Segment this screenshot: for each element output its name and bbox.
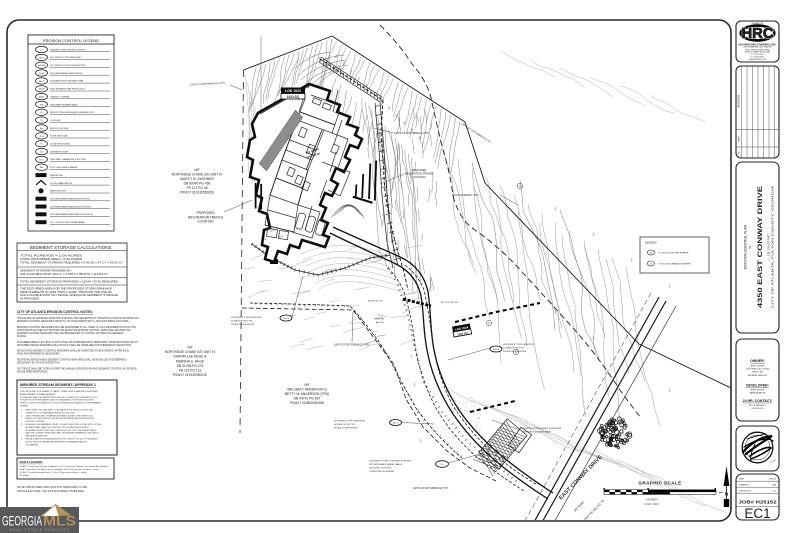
svg-text:PROPOSED: PROPOSED — [412, 168, 427, 172]
svg-text:FLOW LINE: FLOW LINE — [50, 120, 61, 122]
svg-text:CITY OF ATLANTA EROSION CONTRO: CITY OF ATLANTA EROSION CONTROL NOTES: — [17, 310, 93, 314]
svg-text:SILT FENCE TYPE SENSITIVE: SILT FENCE TYPE SENSITIVE — [503, 344, 534, 346]
svg-text:BUFFER ZONE: BUFFER ZONE — [50, 175, 63, 177]
svg-text:1 inch = 40 ft.: 1 inch = 40 ft. — [644, 503, 659, 506]
svg-text:N/F: N/F — [304, 383, 309, 387]
svg-text:BUILD FLOOR LINE: BUILD FLOOR LINE — [50, 128, 69, 130]
svg-text:FB 119 PG 113: FB 119 PG 113 — [179, 369, 201, 373]
svg-text:NORTHSIDE CHASE S/D UNIT IV: NORTHSIDE CHASE S/D UNIT IV — [165, 350, 216, 354]
svg-text:SILT FENCE TYPE SENSITIVE: SILT FENCE TYPE SENSITIVE — [231, 317, 262, 319]
svg-text:CHECKED BY: CHECKED BY — [739, 491, 752, 493]
svg-text:FR 127 PG 46: FR 127 PG 46 — [186, 186, 207, 190]
svg-text:INLET SEDIMENT TRAP PROTECTION: INLET SEDIMENT TRAP PROTECTION — [50, 88, 85, 91]
svg-text:GRAPHIC SCALE: GRAPHIC SCALE — [638, 481, 681, 486]
svg-text:IMPAIRED STREAM SEGMENT/ APPEN: IMPAIRED STREAM SEGMENT/ APPENDIX 1 — [20, 383, 96, 387]
svg-text:LONGITUDE: 84.40820W: LONGITUDE: 84.40820W — [369, 471, 395, 473]
svg-text:EROSION CONTROL LEGEND: EROSION CONTROL LEGEND — [43, 38, 99, 43]
svg-text:TURBIDITY CURTAIN: TURBIDITY CURTAIN — [50, 95, 70, 98]
svg-text:W/ MULCH B/W ROWS: W/ MULCH B/W ROWS — [334, 428, 358, 430]
svg-text:220 HOWELL MILL ROAD: 220 HOWELL MILL ROAD — [746, 368, 770, 371]
svg-text:DATE: DATE — [739, 478, 745, 481]
svg-text:75' NO DISTURBANCE BUFFER: 75' NO DISTURBANCE BUFFER — [658, 263, 691, 266]
svg-text:SAME AS ABOVE: SAME AS ABOVE — [749, 392, 766, 395]
svg-text:JOB# H25152: JOB# H25152 — [739, 500, 777, 506]
svg-text:NECESSARY BY ON-SITE INSPECTIO: NECESSARY BY ON-SITE INSPECTION. — [17, 362, 60, 365]
svg-text:NORTHSIDE CHASE S/D UNIT IV: NORTHSIDE CHASE S/D UNIT IV — [172, 173, 223, 177]
svg-text:SEDIMENT STORAGE CALCULATIONS: SEDIMENT STORAGE CALCULATIONS — [30, 245, 112, 250]
svg-text:CuB2: Cartecay-Toccoa complex,: CuB2: Cartecay-Toccoa complex, 0 to 2 pe… — [20, 465, 110, 468]
svg-text:HRC: HRC — [742, 26, 775, 42]
svg-text:18"x4'x20': 18"x4'x20' — [375, 319, 385, 321]
svg-text:BETTY M. ANDERSON (TRS): BETTY M. ANDERSON (TRS) — [285, 392, 329, 396]
svg-text:Sd1-S: Sd1-S — [38, 57, 45, 59]
svg-text:DISTURBED AREA STABILIZATION W: DISTURBED AREA STABILIZATION W/ SOD — [50, 197, 91, 200]
svg-text:IS PROVIDED.: IS PROVIDED. — [20, 297, 40, 300]
svg-text:DB 31786 PG 274: DB 31786 PG 274 — [177, 364, 204, 368]
svg-text:TEMPORARY SEDIMENT BASIN: TEMPORARY SEDIMENT BASIN — [50, 103, 78, 106]
svg-text:ACTUAL START DATE OF CONSTRUCT: ACTUAL START DATE OF CONSTRUCTION VISIBL… — [26, 426, 90, 429]
svg-text:Sd1-S: Sd1-S — [392, 423, 399, 425]
svg-text:LATITUDE: 33.87376N: LATITUDE: 33.87376N — [369, 467, 392, 470]
svg-text:DISTRICT OFFICE.: DISTRICT OFFICE. — [26, 421, 46, 423]
svg-text:GEORGIA: GEORGIA — [2, 513, 42, 529]
svg-text:SOURCE.: SOURCE. — [17, 335, 27, 338]
svg-text:RAIN, AND REPAIRED AS NECESSAR: RAIN, AND REPAIRED AS NECESSARY. — [17, 353, 60, 356]
svg-text:HAS BEEN SUBMITTED.: HAS BEEN SUBMITTED. — [26, 435, 49, 438]
svg-text:DATE: DATE — [738, 136, 741, 142]
svg-text:LIMITS OF DISTURBANCE (TYP.): LIMITS OF DISTURBANCE (TYP.) — [334, 344, 370, 347]
svg-text:Ds3/4: Ds3/4 — [39, 73, 45, 75]
svg-text:GwF: Gwinett-Pacolet-Cecil com: GwF: Gwinett-Pacolet-Cecil complex, 20 t… — [20, 468, 100, 471]
svg-text:STONE CHECK DAM: STONE CHECK DAM — [50, 135, 67, 138]
svg-text:INSTALL BMPS FOR A MINIMUM 50: INSTALL BMPS FOR A MINIMUM 50 FOOT WIDTH… — [26, 438, 98, 441]
svg-text:N/F: N/F — [187, 346, 192, 350]
svg-text:DISTURBED AREAS REMAINING IDLE: DISTURBED AREAS REMAINING IDLE 30 DAYS S… — [17, 344, 132, 347]
svg-text:DB 44741 PG 897: DB 44741 PG 897 — [294, 397, 321, 401]
svg-text:PaD2: Pacolet sandy loam, 10 t: PaD2: Pacolet sandy loam, 10 to 25 perce… — [20, 471, 88, 474]
svg-text:W/ MULCH B/W ROWS: W/ MULCH B/W ROWS — [231, 324, 255, 326]
svg-text:DISCHARGED.: DISCHARGED. — [26, 443, 40, 446]
svg-text:DEVELOPER:: DEVELOPER: — [746, 384, 769, 388]
svg-text:SOILS LEGEND:: SOILS LEGEND: — [20, 460, 43, 464]
svg-text:HOOSER RAY COMPANY, INC.: HOOSER RAY COMPANY, INC. — [739, 43, 777, 46]
svg-text:SEDIMENT CONTROL MEASURES SHAL: SEDIMENT CONTROL MEASURES SHALL BE IMPLE… — [17, 332, 124, 335]
svg-text:678-230-1174: 678-230-1174 — [751, 408, 764, 410]
svg-text:DOUBLE ROW (TYP): DOUBLE ROW (TYP) — [231, 321, 253, 323]
svg-text:CRUSHED STONE CONSTRUCTION EXI: CRUSHED STONE CONSTRUCTION EXIT — [369, 461, 412, 463]
svg-text:SILT FENCE TYPE SENSITIVE: SILT FENCE TYPE SENSITIVE — [334, 421, 365, 423]
svg-text:THE PROPOSED SITE DRAINS TO NA: THE PROPOSED SITE DRAINS TO NANCY CREEK … — [20, 390, 98, 393]
svg-text:04/11/25: 04/11/25 — [769, 479, 776, 481]
svg-text:AND FUEL STORAGE AREA: AND FUEL STORAGE AREA — [522, 431, 551, 434]
svg-text:870: 870 — [411, 355, 413, 358]
svg-text:F: 770-859-0358: F: 770-859-0358 — [751, 56, 764, 58]
svg-text:W/ TEMPORARY WHEEL WASH: W/ TEMPORARY WHEEL WASH — [369, 463, 402, 466]
svg-text:25 LF: 25 LF — [378, 315, 384, 317]
svg-text:866: 866 — [417, 411, 419, 414]
svg-text:TO ENSURE THAT THE PERMITTEE D: TO ENSURE THAT THE PERMITTEE DOES NOT VI… — [20, 396, 97, 399]
svg-text:CITY OF ATLANTA, FULTON COUNTY: CITY OF ATLANTA, FULTON COUNTY, GEORGIA — [771, 185, 774, 308]
svg-text:NOTE: PROPOSED INFILTRATION TR: NOTE: PROPOSED INFILTRATION TRENCHES TO … — [17, 485, 87, 489]
svg-text:LIMITS OF DISTURBANCE (TYP.): LIMITS OF DISTURBANCE (TYP.) — [413, 487, 449, 490]
svg-text:Sd3/T: Sd3/T — [39, 97, 45, 99]
svg-text:868: 868 — [414, 383, 416, 386]
svg-text:SUITE 2-087: SUITE 2-087 — [752, 372, 764, 374]
svg-text:Sd1-S: Sd1-S — [493, 349, 500, 351]
svg-text:L.L. 138, 17th DISTRICT: L.L. 138, 17th DISTRICT — [768, 233, 771, 261]
svg-text:EC1: EC1 — [744, 506, 770, 521]
svg-text:SILT FENCE (TYPE NON-SENSITIVE: SILT FENCE (TYPE NON-SENSITIVE) — [50, 65, 86, 67]
svg-text:AND THE CONTACT PERSON(S) AND: AND THE CONTACT PERSON(S) AND TELEPHONE … — [26, 432, 100, 435]
svg-text:SEDIMENT CONTROL MEASURES PRIO: SEDIMENT CONTROL MEASURES PRIOR TO, OR C… — [17, 320, 129, 323]
svg-text:TEMPORARY CHANNELIZED STRUCTUR: TEMPORARY CHANNELIZED STRUCTURE — [50, 158, 86, 161]
svg-text:PID#17 013800050185: PID#17 013800050185 — [290, 401, 324, 405]
svg-text:ACRES OR LESS WITHOUT PRIOR WR: ACRES OR LESS WITHOUT PRIOR WRITTEN APPR… — [26, 417, 95, 420]
svg-text:ATEFI DESIGN: ATEFI DESIGN — [751, 365, 765, 368]
svg-text:SAMPLING POINT: SAMPLING POINT — [50, 190, 67, 193]
svg-text:CRUSHED STONE CONSTRUCTION EXI: CRUSHED STONE CONSTRUCTION EXIT — [50, 49, 86, 51]
svg-text:Bm: Bm — [40, 128, 43, 130]
svg-text:AS AN IMPAIRED STREAM SEGMENT.: AS AN IMPAIRED STREAM SEGMENT. — [20, 393, 56, 396]
svg-text:REAL ESTATE SERVICES: REAL ESTATE SERVICES — [10, 528, 70, 532]
svg-text:Sd2-P: Sd2-P — [38, 81, 45, 83]
svg-text:TURBIDITY OF STORMWATER RECEIV: TURBIDITY OF STORMWATER RECEIVED ON-SITE… — [26, 411, 76, 414]
svg-text:864: 864 — [420, 439, 422, 442]
svg-text:PID#17 019130050012: PID#17 019130050012 — [173, 373, 207, 377]
svg-text:MLS: MLS — [43, 513, 76, 529]
svg-text:DARVIN LEE HEGE &: DARVIN LEE HEGE & — [174, 355, 208, 359]
svg-text:INV OUT: 872.00: INV OUT: 872.00 — [441, 302, 458, 304]
svg-text:RETROFITTING PERFORATED RISER: RETROFITTING PERFORATED RISER AND PIPE — [50, 111, 94, 114]
svg-text:INFILTRATION TRENCH: INFILTRATION TRENCH — [405, 172, 434, 176]
svg-text:WILLIAM F. ANDERSON &: WILLIAM F. ANDERSON & — [287, 388, 327, 392]
svg-text:SILT FENCE (TYPE SENSITIVE): SILT FENCE (TYPE SENSITIVE) — [50, 57, 81, 59]
svg-text:◆ 4.20%: ◆ 4.20% — [376, 321, 384, 324]
svg-text:W: Water: W: Water — [20, 474, 30, 477]
svg-text:EROSION CONTROL PLAN: EROSION CONTROL PLAN — [744, 224, 748, 269]
svg-text:Sd1-NS: Sd1-NS — [38, 65, 46, 67]
svg-text:LOCATION: LOCATION — [412, 175, 425, 179]
svg-text:OWNER:: OWNER: — [750, 359, 765, 363]
svg-text:EXCAVATED INLET SEDIMENT TRAP: EXCAVATED INLET SEDIMENT TRAP — [50, 80, 84, 83]
svg-text:Sd2-F: Sd2-F — [39, 89, 46, 91]
svg-text:872: 872 — [408, 327, 410, 330]
svg-text:INV IN: 872.00: INV IN: 872.00 — [368, 301, 383, 303]
svg-text:INSTALLED ONCE THE SITE HAS BE: INSTALLED ONCE THE SITE HAS BEEN STABILI… — [17, 489, 85, 493]
svg-text:DISSIPATOR STONE: DISSIPATOR STONE — [50, 150, 69, 153]
svg-text:LIMIT THE AMOUNT OF AREA DISTU: LIMIT THE AMOUNT OF AREA DISTURBED AT AN… — [26, 414, 94, 417]
svg-text:SOILS BOUNDARY (TYP.): SOILS BOUNDARY (TYP.) — [452, 194, 480, 197]
svg-text:AND BE WIRE REINFORCED.: AND BE WIRE REINFORCED. — [17, 371, 48, 374]
svg-text:Sd1-S DOUBLE ROW: 224 LF x 0.: Sd1-S DOUBLE ROW: 224 LF x 0.535 CY (BOT… — [20, 273, 108, 276]
svg-text:DB 60045 PG 459: DB 60045 PG 459 — [184, 182, 211, 186]
svg-text:TOTAL SEDIMENT STORAGE REQUIRE: TOTAL SEDIMENT STORAGE REQUIRED = 0.92 A… — [20, 261, 123, 264]
svg-text:THESE 4 LIMITS FOR REACH OF TH: THESE 4 LIMITS FOR REACH OF THE SITE WHI… — [20, 402, 102, 405]
svg-text:VIOLATION OF STATE WATER QUALI: VIOLATION OF STATE WATER QUALITY STANDAR… — [20, 399, 94, 402]
svg-text:TOTAL SEDIMENT STORAGE PROVIDE: TOTAL SEDIMENT STORAGE PROVIDED = 119.84… — [20, 280, 118, 283]
svg-text:STREAM:: STREAM: — [20, 405, 29, 408]
svg-text:25' S/S NO DISTURB BUFFER: 25' S/S NO DISTURB BUFFER — [658, 253, 689, 255]
svg-text:Sd1-S: Sd1-S — [283, 318, 290, 320]
svg-text:WILLIE TARVER, D: WILLIE TARVER, D — [749, 404, 767, 407]
svg-text:REVISIONS: REVISIONS — [739, 94, 741, 107]
svg-text:DISTURBED AREA STABILIZATION W: DISTURBED AREA STABILIZATION W/ SEED — [50, 205, 92, 208]
svg-text:( IN FEET ): ( IN FEET ) — [646, 499, 659, 502]
svg-text:No.: No. — [739, 151, 741, 154]
svg-text:LOD 1024: LOD 1024 — [285, 89, 301, 93]
svg-text:DISTURBED AREA STABILIZATION: DISTURBED AREA STABILIZATION — [50, 72, 83, 75]
svg-text:BMPS SHALL BE DESIGNED TO ACHI: BMPS SHALL BE DESIGNED TO ACHIEVE A 75% … — [26, 409, 94, 412]
svg-text:Ck-S: Ck-S — [39, 136, 44, 138]
svg-text:N: N — [725, 492, 729, 498]
svg-text:MARCY M. KUSHNER: MARCY M. KUSHNER — [180, 177, 214, 181]
svg-text:4350 EAST CONWAY DRIVE: 4350 EAST CONWAY DRIVE — [757, 185, 764, 308]
svg-text:DOUBLE ROW (TYP): DOUBLE ROW (TYP) — [334, 424, 356, 426]
svg-text:LOCATION: LOCATION — [197, 220, 214, 224]
svg-text:DOUBLE ROW (TYP): DOUBLE ROW (TYP) — [503, 348, 525, 350]
svg-text:SILT CONTROL IN DISTURBED AREA: SILT CONTROL IN DISTURBED AREA — [50, 221, 85, 224]
svg-text:24 HR. CONTACT:: 24 HR. CONTACT: — [743, 399, 773, 403]
svg-text:DRAWN BY: DRAWN BY — [739, 484, 750, 487]
svg-text:ROADWAY IDENTIFYING THE CONSTR: ROADWAY IDENTIFYING THE CONSTRUCTION SIT… — [26, 429, 97, 432]
svg-text:ALONG THE SITE PERIMETER WHERE: ALONG THE SITE PERIMETER WHEREVER STORMW… — [26, 440, 88, 443]
svg-text:CONSTRUCTION DEBRIS DUMPSTER: CONSTRUCTION DEBRIS DUMPSTER — [522, 428, 562, 430]
svg-text:1024 SQ: 1024 SQ — [287, 95, 300, 99]
svg-text:DISTURBED AREA STABILIZATION W: DISTURBED AREA STABILIZATION W/ MULCH — [50, 213, 93, 216]
svg-text:WWW.HRCENG.COM: WWW.HRCENG.COM — [749, 59, 766, 61]
svg-text:PID#17 019130550226: PID#17 019130550226 — [180, 191, 214, 195]
svg-text:MARSHA S. HEGE: MARSHA S. HEGE — [176, 359, 205, 363]
svg-text:OUTLET PROTECTION: OUTLET PROTECTION — [50, 144, 70, 146]
svg-text:A LARGE SIGN MINIMUM 4 FEET X: A LARGE SIGN MINIMUM 4 FEET X 8 FEET MUS… — [26, 423, 102, 426]
svg-text:N/F: N/F — [194, 168, 199, 172]
svg-text:FLOW LINE SURFACE MARKER: FLOW LINE SURFACE MARKER — [50, 166, 78, 169]
svg-text:LEGEND: LEGEND — [645, 241, 657, 245]
svg-text:ATEFI DESIGN: ATEFI DESIGN — [751, 389, 765, 392]
svg-text:SLOPE STABILIZATION: SLOPE STABILIZATION — [50, 182, 72, 185]
svg-text:ATLANTA, GA 30318: ATLANTA, GA 30318 — [748, 374, 768, 377]
